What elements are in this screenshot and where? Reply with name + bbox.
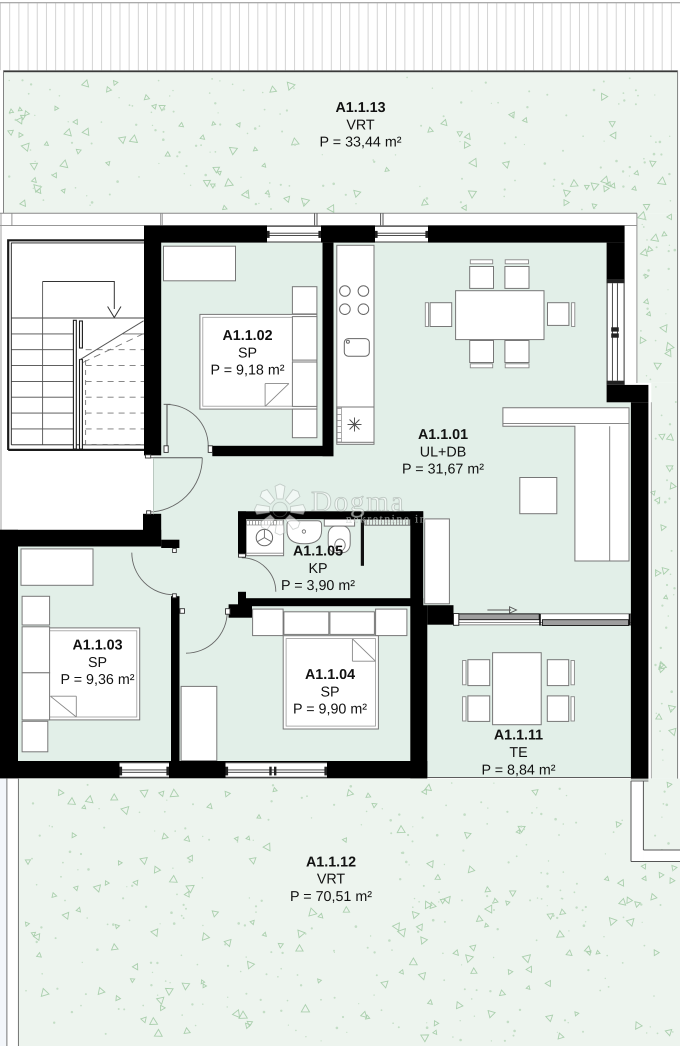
svg-text:P = 31,67 m²: P = 31,67 m²	[402, 462, 484, 478]
svg-text:KP: KP	[308, 561, 327, 577]
svg-text:P = 8,84 m²: P = 8,84 m²	[481, 762, 555, 778]
svg-text:A1.1.04: A1.1.04	[305, 667, 355, 683]
svg-text:UL+DB: UL+DB	[420, 444, 467, 460]
svg-text:A1.1.01: A1.1.01	[418, 427, 468, 443]
svg-text:P = 33,44 m²: P = 33,44 m²	[320, 135, 402, 151]
svg-text:SP: SP	[238, 345, 257, 361]
svg-text:P = 9,36 m²: P = 9,36 m²	[60, 672, 134, 688]
svg-text:A1.1.05: A1.1.05	[293, 544, 343, 560]
svg-text:P = 9,18 m²: P = 9,18 m²	[210, 363, 284, 379]
svg-text:A1.1.03: A1.1.03	[72, 638, 122, 654]
svg-text:SP: SP	[320, 684, 339, 700]
svg-text:A1.1.12: A1.1.12	[306, 854, 356, 870]
svg-text:VRT: VRT	[317, 872, 346, 888]
svg-text:SP: SP	[88, 655, 107, 671]
svg-text:TE: TE	[509, 745, 527, 761]
svg-text:P = 3,90 m²: P = 3,90 m²	[281, 578, 355, 594]
svg-text:P = 9,90 m²: P = 9,90 m²	[293, 702, 367, 718]
svg-text:P = 70,51 m²: P = 70,51 m²	[290, 889, 372, 905]
svg-text:VRT: VRT	[346, 117, 375, 133]
svg-text:A1.1.02: A1.1.02	[222, 328, 272, 344]
svg-text:A1.1.11: A1.1.11	[494, 728, 543, 744]
svg-text:nekretnine in: nekretnine in	[346, 514, 427, 526]
svg-text:A1.1.13: A1.1.13	[335, 100, 385, 116]
